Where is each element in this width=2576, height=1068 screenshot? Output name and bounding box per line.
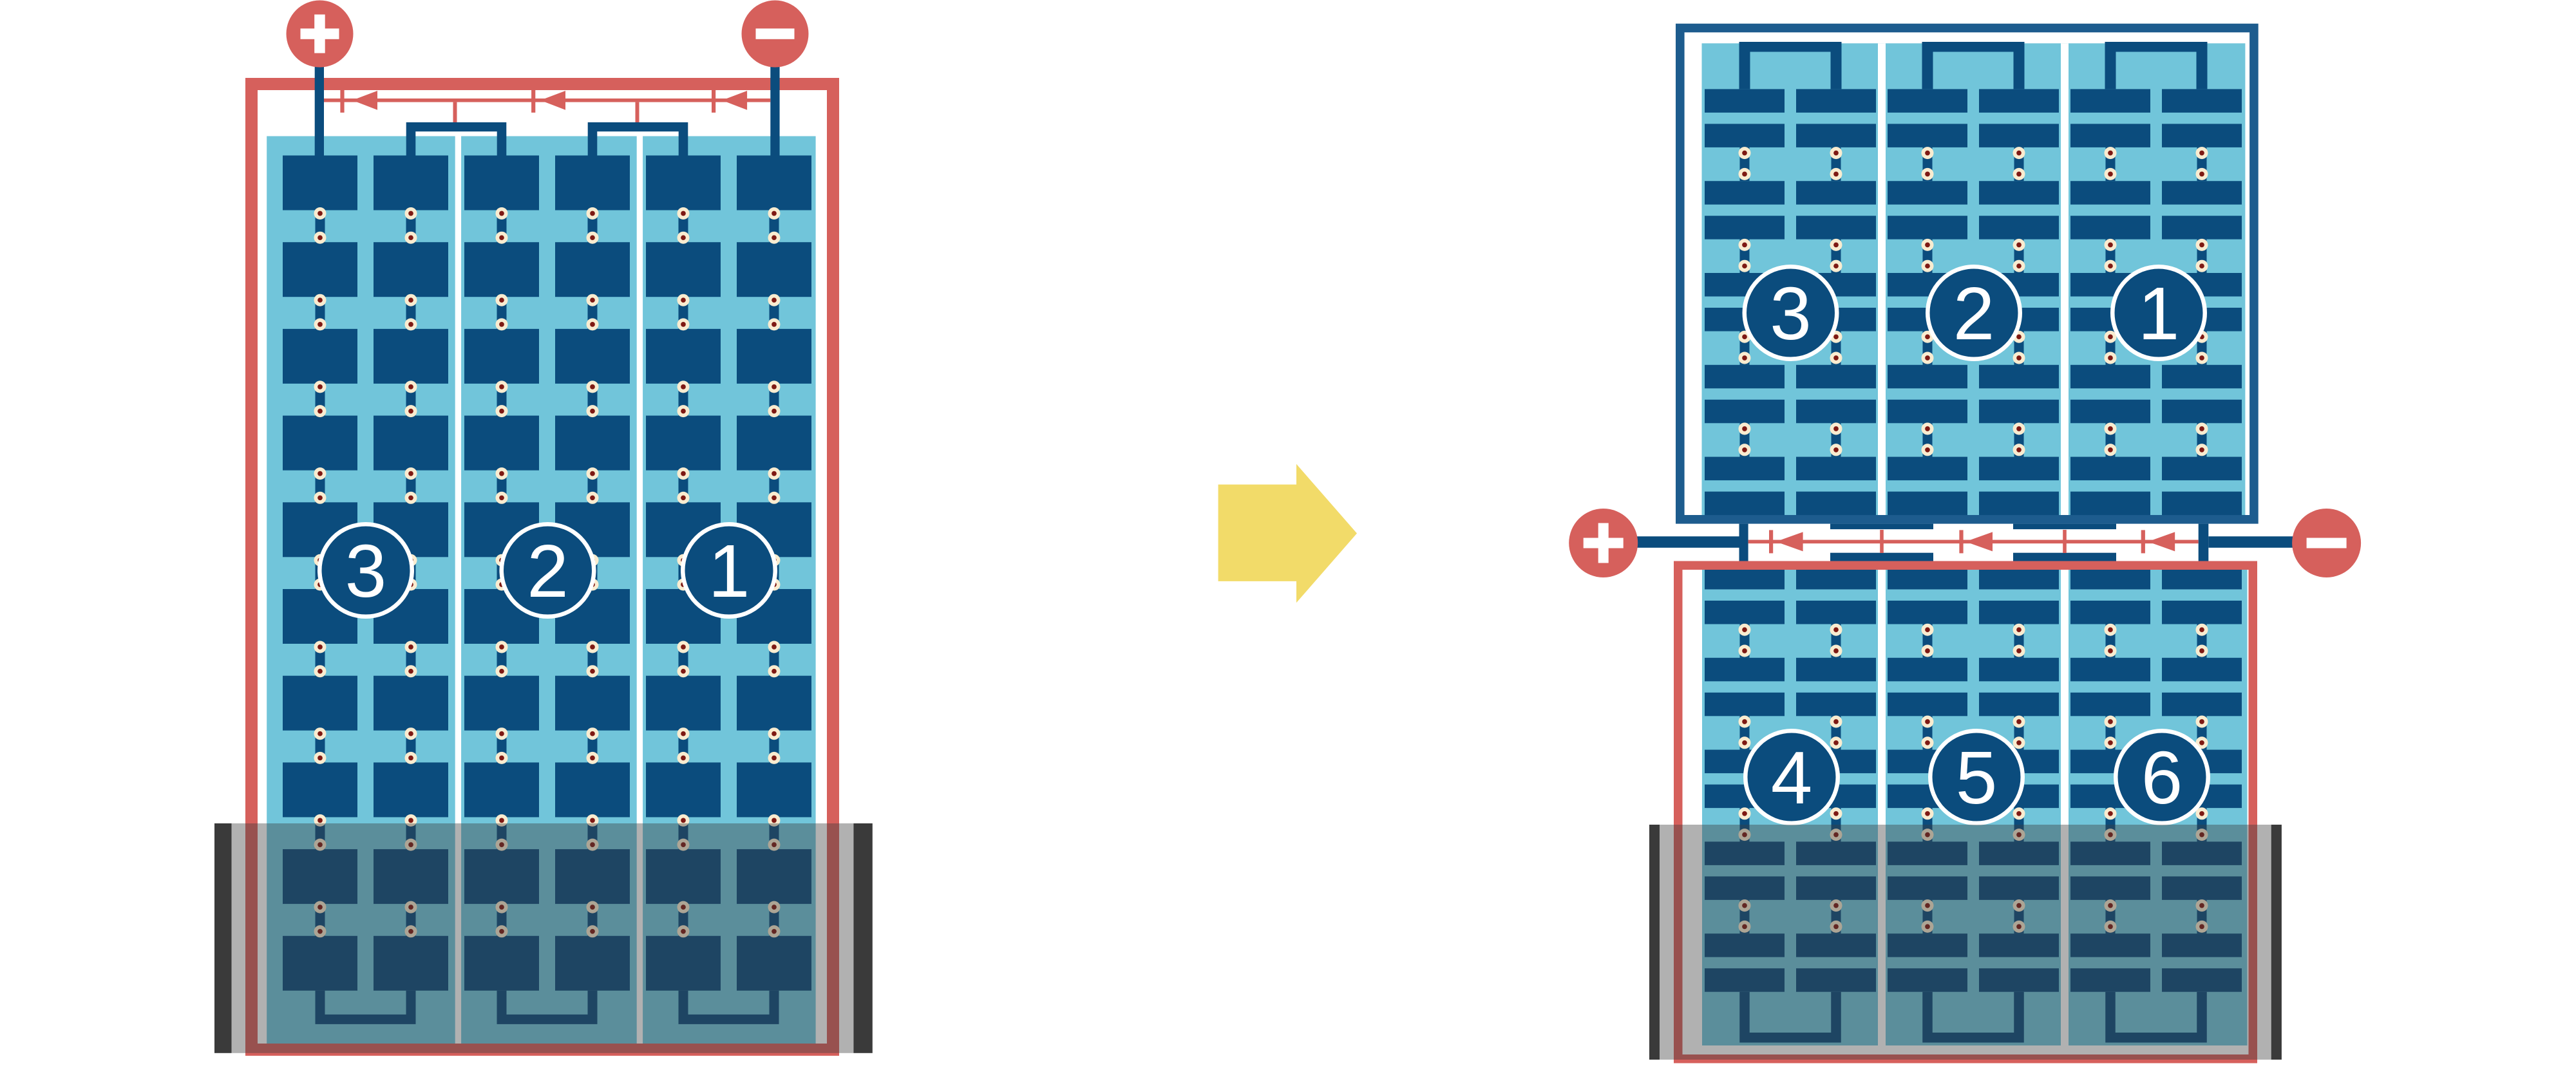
svg-text:3: 3 — [1770, 272, 1812, 355]
svg-text:2: 2 — [527, 529, 569, 613]
svg-text:1: 1 — [708, 529, 750, 613]
svg-text:6: 6 — [2141, 736, 2183, 820]
svg-text:3: 3 — [345, 529, 387, 613]
svg-text:5: 5 — [1956, 736, 1998, 820]
svg-text:4: 4 — [1771, 736, 1813, 820]
svg-text:2: 2 — [1953, 272, 1995, 355]
svg-text:1: 1 — [2138, 272, 2180, 355]
